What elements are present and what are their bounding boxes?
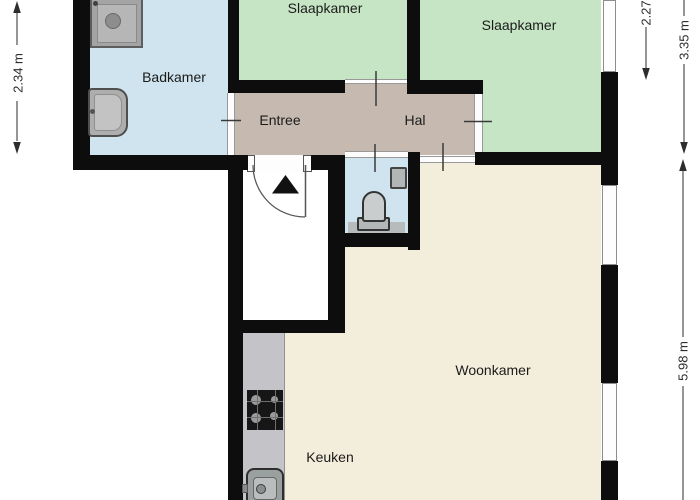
room-label-entree: Entree [259,112,300,128]
burner [251,395,261,405]
dimension-arrow-icon [13,1,21,13]
toilet-icon [362,191,386,222]
room-label-woonkamer: Woonkamer [455,362,530,378]
door-swing-icon [253,165,305,217]
grate-line [247,401,283,402]
dimension-arrow-icon [13,142,21,154]
wall [601,461,618,500]
door-opening-woonkamer [420,156,475,163]
wall [601,72,618,185]
door-opening-badkamer [227,93,235,155]
room-woonkamer-area [345,233,425,500]
hand-basin-icon [390,167,407,189]
dimension-arrow-icon [679,159,687,171]
dimension-label-right-top: 2.27 [639,0,654,25]
grate-line [247,417,283,418]
wall [475,152,601,165]
wall [73,155,248,170]
dimension-arrow-icon [680,142,688,154]
dimension-arrow-icon [642,68,650,80]
room-label-slaapkamer-right: Slaapkamer [482,17,557,33]
wall [228,80,345,93]
entrance-door-opening [254,155,304,172]
entrance-door-post [247,155,255,172]
shower-drain [105,13,121,29]
entrance-arrow-icon [272,175,299,194]
floor-plan: Badkamer Slaapkamer Slaapkamer Entree Ha… [0,0,700,500]
dimension-label-right-upper: 3.35 m [677,20,692,60]
grate-line [257,390,258,430]
room-label-keuken: Keuken [306,449,353,465]
burner [270,412,278,420]
washbasin-tap-dot [90,109,95,114]
kitchen-knob [242,484,248,493]
dimension-label-left: 2.34 m [11,53,26,93]
shower-head-dot [93,1,98,6]
window-icon [603,0,616,72]
door-opening-slaapkamer-right [474,93,483,152]
cooktop-icon [247,390,283,430]
wall [601,265,618,383]
wall [73,0,90,170]
wall [407,80,483,94]
burner [251,413,261,423]
window-icon [602,383,617,461]
room-label-slaapkamer-left: Slaapkamer [288,0,363,16]
room-label-badkamer: Badkamer [142,69,206,85]
dimension-label-right-lower: 5.98 m [676,341,691,381]
washbasin-bowl [94,94,122,131]
window-icon [602,185,617,265]
room-label-hal: Hal [404,112,425,128]
room-woonkamer-area [415,160,601,500]
grate-line [275,390,276,430]
wall [340,233,418,247]
kitchen-faucet [256,484,266,494]
wall [407,0,420,88]
door-opening-slaapkamer-left [345,79,407,84]
wall [228,320,345,333]
door-opening-toilet [345,151,408,158]
